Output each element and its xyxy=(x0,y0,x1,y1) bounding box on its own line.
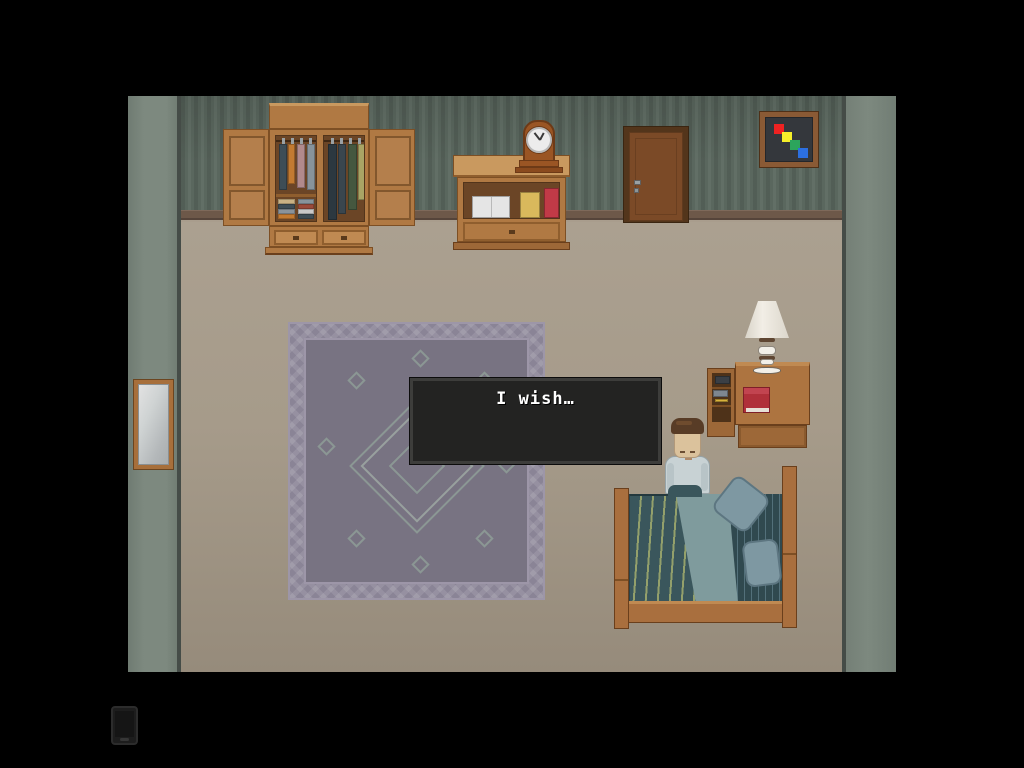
gray-book xyxy=(713,390,728,397)
wardrobe-open-door-left[interactable] xyxy=(223,129,269,226)
wardrobe-shelf xyxy=(276,194,316,197)
book-crease xyxy=(491,197,492,217)
book-cover-top xyxy=(744,388,769,394)
right-side-wall xyxy=(845,96,896,672)
dialog-text: I wish… xyxy=(496,389,575,409)
shelf-board xyxy=(712,405,731,407)
hanging-garment xyxy=(348,144,357,210)
bed-footboard xyxy=(614,601,797,623)
right-wall-seam xyxy=(842,96,846,672)
bed-post-right xyxy=(782,466,797,628)
pillow xyxy=(741,538,782,588)
hanging-garment xyxy=(338,144,346,214)
mirror-glass xyxy=(138,384,169,465)
dresser-shelf xyxy=(463,182,560,219)
bed-post-left xyxy=(614,488,629,629)
folded-clothes xyxy=(298,214,314,219)
lamp-stem xyxy=(760,359,774,365)
clock-hand xyxy=(539,132,545,140)
pencil xyxy=(715,399,728,402)
wardrobe-crown xyxy=(269,103,369,129)
wardrobe-base xyxy=(265,247,373,255)
door-panel xyxy=(375,190,411,220)
boy-eye xyxy=(680,451,685,453)
rug-accent xyxy=(317,437,335,455)
wardrobe-body xyxy=(269,129,369,226)
dialog-box[interactable]: I wish… xyxy=(410,378,661,464)
rug-accent xyxy=(411,349,429,367)
post-notch xyxy=(783,553,796,555)
lamp-neck xyxy=(759,338,775,342)
wall-mirror[interactable] xyxy=(133,379,174,470)
yellow-book[interactable] xyxy=(520,192,540,218)
phone-icon[interactable] xyxy=(111,706,138,745)
drawer-handle xyxy=(341,236,347,240)
wardrobe-drawer[interactable] xyxy=(274,230,318,245)
lamp-base xyxy=(753,367,781,374)
folded-clothes xyxy=(278,214,295,219)
drawer-handle xyxy=(293,236,299,240)
framed-picture[interactable] xyxy=(760,112,818,167)
phone-home-button xyxy=(120,738,129,741)
hanging-garment xyxy=(297,144,305,188)
door-panel xyxy=(229,136,265,186)
door-panel xyxy=(375,136,411,186)
dresser-body xyxy=(457,177,566,242)
door-lock xyxy=(634,188,639,193)
wardrobe[interactable] xyxy=(223,103,415,255)
clock-base xyxy=(515,167,563,173)
game-screen: I wish… xyxy=(0,0,1024,768)
boy-hair xyxy=(671,418,704,434)
wardrobe-left-compartment xyxy=(275,135,317,222)
lamp-shade xyxy=(745,301,789,338)
hanging-garment xyxy=(279,144,287,190)
rug-accent xyxy=(347,529,365,547)
rug-accent xyxy=(411,555,429,573)
shelf-board xyxy=(712,387,731,389)
room-door[interactable] xyxy=(623,126,689,223)
boy-mouth xyxy=(685,458,692,460)
mantel-clock[interactable] xyxy=(515,120,563,173)
bed[interactable] xyxy=(614,466,797,629)
hanging-garment xyxy=(328,144,337,220)
hair-highlight xyxy=(676,421,692,425)
red-book-on-nightstand[interactable] xyxy=(743,387,770,413)
blanket-over-legs xyxy=(668,485,702,497)
nightstand-side-shelf[interactable] xyxy=(707,368,735,437)
door-inner-panel xyxy=(635,138,677,215)
shelf-cavity xyxy=(712,373,731,422)
door-panel xyxy=(229,190,265,220)
hanging-garment xyxy=(288,144,295,184)
rug-accent xyxy=(475,529,493,547)
picture-square-blue xyxy=(798,148,808,158)
hanging-garment xyxy=(358,144,365,200)
dresser-drawer[interactable] xyxy=(463,222,560,241)
drawer-handle xyxy=(509,230,515,234)
open-book[interactable] xyxy=(472,196,510,218)
dark-book xyxy=(715,376,730,384)
dresser-base xyxy=(453,242,570,250)
door-handle[interactable] xyxy=(634,180,641,185)
post-notch xyxy=(615,579,628,581)
boy-eye xyxy=(690,451,695,453)
red-book-on-shelf[interactable] xyxy=(544,188,559,218)
phone-screen xyxy=(115,711,134,737)
nightstand-drawer[interactable] xyxy=(738,425,807,448)
hanging-garment xyxy=(307,144,315,190)
lamp-stem xyxy=(758,346,776,355)
wardrobe-open-door-right[interactable] xyxy=(369,129,415,226)
clock-face xyxy=(526,127,552,153)
wardrobe-drawer[interactable] xyxy=(322,230,366,245)
wardrobe-drawer-row xyxy=(269,226,369,247)
door-face xyxy=(629,132,683,221)
wardrobe-right-compartment xyxy=(323,135,365,222)
book-pages xyxy=(746,408,769,412)
game-viewport: I wish… xyxy=(128,96,896,672)
clock-base xyxy=(519,160,559,167)
left-wall-seam xyxy=(177,96,181,672)
rug-accent xyxy=(347,371,365,389)
table-lamp[interactable] xyxy=(745,301,789,379)
